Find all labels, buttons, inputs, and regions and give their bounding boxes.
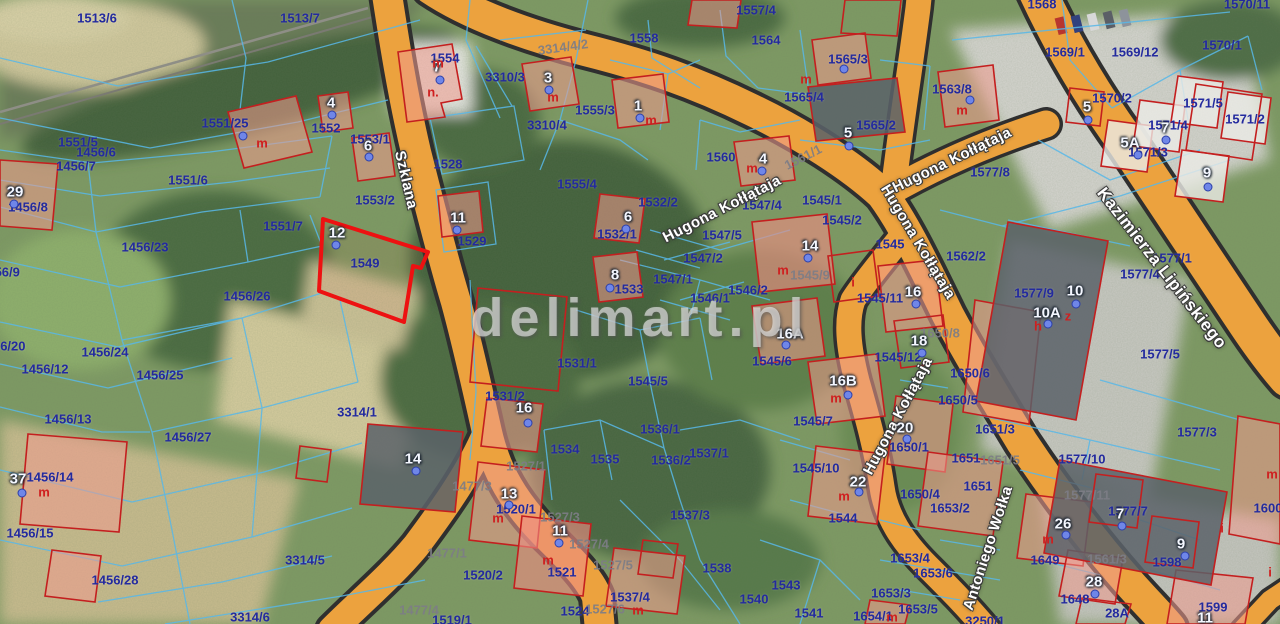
parcel-label: 1538 — [703, 562, 732, 575]
parcel-label: 1545/10 — [793, 462, 840, 475]
parcel-label: 1513/7 — [280, 12, 320, 25]
parcel-label: 1549 — [351, 257, 380, 270]
building-number: 6 — [364, 139, 372, 154]
building-type-marker: m — [777, 264, 789, 277]
parcel-label: 1532/1 — [597, 228, 637, 241]
parcel-label: 1456/9 — [0, 266, 20, 279]
building-number: 5A — [1120, 136, 1139, 151]
building-type-marker: z — [1065, 310, 1072, 323]
parcel-label: 1541 — [795, 607, 824, 620]
building-number: 11 — [450, 211, 466, 226]
parcel-label: 1565/2 — [856, 119, 896, 132]
parcel-label: 1563/8 — [932, 83, 972, 96]
building-type-marker: i — [851, 276, 855, 289]
parcel-label: 3310/4 — [527, 119, 567, 132]
parcel-label: 1456/28 — [92, 574, 139, 587]
parcel-label: 1571/5 — [1183, 97, 1223, 110]
parcel-label: 1568 — [1028, 0, 1057, 11]
parcel-label: 1532/2 — [638, 196, 678, 209]
building-number: 4 — [327, 96, 335, 111]
building-dot — [524, 419, 533, 428]
building-dot — [1062, 531, 1071, 540]
parcel-label: 1545/11 — [857, 292, 903, 305]
parcel-label: 1545 — [876, 238, 905, 251]
building-dot — [555, 539, 564, 548]
building-type-marker: m — [645, 114, 657, 127]
building-type-marker: n. — [427, 86, 439, 99]
parcel-label: 1545/5 — [628, 375, 668, 388]
building-dot — [1084, 116, 1093, 125]
road-parcel-label: 1527/6 — [585, 603, 625, 616]
watermark: delimart.pl — [470, 287, 809, 349]
building-dot — [844, 391, 853, 400]
parcel-label: 1547/5 — [702, 229, 742, 242]
road-parcel-label: 1477/4 — [399, 604, 439, 617]
building-dot — [840, 65, 849, 74]
parcel-label: 1650/4 — [900, 488, 940, 501]
parcel-label: 1650/6 — [950, 367, 990, 380]
road-parcel-label: 1527/4 — [569, 538, 609, 551]
parcel-label: 1570/11 — [1224, 0, 1270, 11]
parcel-label: 1456/23 — [122, 241, 169, 254]
building-dot — [845, 142, 854, 151]
map-canvas[interactable]: 1513/61513/71551/251551/51456/61456/7155… — [0, 0, 1280, 624]
building-dot — [912, 300, 921, 309]
parcel-label: 1569/1 — [1045, 46, 1085, 59]
building-dot — [505, 501, 514, 510]
building-number: 5 — [1083, 100, 1091, 115]
building-number: 37 — [10, 472, 27, 487]
parcel-label: 1536/2 — [651, 454, 691, 467]
building-dot — [758, 167, 767, 176]
building-type-marker: m — [542, 554, 554, 567]
parcel-label: 1540 — [740, 593, 769, 606]
building-type-marker: m — [1042, 533, 1054, 546]
building-number: 6 — [624, 210, 632, 225]
road-parcel-label: 1477/1 — [427, 547, 467, 560]
building-type-marker: m — [800, 73, 812, 86]
parcel-label: 3314/1 — [337, 406, 377, 419]
building-number: 14 — [405, 452, 422, 467]
parcel-label: 1552 — [312, 122, 341, 135]
road-parcel-label: 1651/5 — [980, 454, 1020, 467]
parcel-label: 1456/24 — [82, 346, 129, 359]
parcel-label: 1545/6 — [752, 355, 792, 368]
parcel-label: 1577/5 — [1140, 348, 1180, 361]
building-type-marker: m — [956, 104, 968, 117]
parcel-label: 3314/6 — [230, 611, 270, 624]
building-dot — [239, 132, 248, 141]
parcel-label: 1456/7 — [56, 160, 96, 173]
parcel-label: 1513/6 — [77, 12, 117, 25]
building-number: 28 — [1086, 575, 1103, 590]
building-number: 1 — [634, 99, 642, 114]
building-number: 9 — [1203, 166, 1211, 181]
building-dot — [412, 467, 421, 476]
parcel-label: 1531/1 — [557, 357, 597, 370]
road-parcel-label: 1545/9 — [790, 269, 830, 282]
building-number: 11 — [1197, 611, 1213, 624]
parcel-label: 3250/1 — [965, 615, 1005, 624]
parcel-label: 1577/9 — [1014, 287, 1054, 300]
parcel-label: 1565/3 — [828, 53, 868, 66]
parcel-label: 1456/13 — [45, 413, 92, 426]
building-number: 20 — [897, 421, 914, 436]
parcel-label: 1649 — [1031, 554, 1060, 567]
building-dot — [1118, 522, 1127, 531]
parcel-label: 1600 — [1254, 502, 1280, 515]
building-type-marker: i — [1220, 522, 1224, 535]
parcel-label: 1456/15 — [7, 527, 54, 540]
road-parcel-label: 1577/11 — [1064, 489, 1110, 502]
building-dot — [1091, 590, 1100, 599]
parcel-label: 1520/2 — [463, 569, 503, 582]
building-dot — [903, 435, 912, 444]
parcel-label: 1558 — [630, 32, 659, 45]
building-dot — [10, 200, 19, 209]
parcel-label: 1545/12 — [875, 351, 922, 364]
building-number: 8 — [611, 268, 619, 283]
parcel-label: 1651/3 — [975, 423, 1015, 436]
building-type-marker: m — [886, 611, 898, 624]
parcel-label: 1456/20 — [0, 340, 26, 353]
parcel-label: 1555/3 — [575, 104, 615, 117]
parcel-label: 1545/2 — [822, 214, 862, 227]
parcel-label: 1535 — [591, 453, 620, 466]
building-number: 13 — [501, 487, 518, 502]
parcel-label: 1569/12 — [1112, 46, 1159, 59]
building-number: 14 — [802, 239, 819, 254]
parcel-label: 1543 — [772, 579, 801, 592]
building-type-marker: m — [432, 57, 444, 70]
building-number: 11 — [552, 524, 568, 539]
parcel-label: 1557/4 — [736, 4, 776, 17]
building-number: 16 — [905, 285, 922, 300]
parcel-label: 1653/3 — [871, 587, 911, 600]
building-type-marker: m — [492, 512, 504, 525]
parcel-label: 1547/1 — [653, 273, 693, 286]
building-type-marker: h — [1034, 320, 1042, 333]
building-type-marker: m — [256, 137, 268, 150]
parcel-label: 1534 — [551, 443, 580, 456]
parcel-label: 1545/7 — [793, 415, 833, 428]
building-dot — [636, 114, 645, 123]
building-dot — [365, 153, 374, 162]
parcel-label: 1565/4 — [784, 91, 824, 104]
parcel-label: 1570/2 — [1092, 92, 1132, 105]
building-number: 12 — [329, 226, 346, 241]
building-dot — [1134, 151, 1143, 160]
road-parcel-label: 1527/1 — [506, 460, 546, 473]
building-number: 18 — [911, 334, 928, 349]
building-number: 5 — [844, 126, 852, 141]
parcel-label: 1555/4 — [557, 178, 597, 191]
road-parcel-label: 3314/4/2 — [537, 37, 589, 57]
building-dot — [436, 76, 445, 85]
parcel-label: 1544 — [829, 512, 858, 525]
building-dot — [804, 254, 813, 263]
building-dot — [1072, 300, 1081, 309]
parcel-label: 1577/10 — [1059, 453, 1106, 466]
road-parcel-label: 1561/1 — [782, 142, 823, 172]
building-type-marker: m — [1266, 468, 1278, 481]
building-number: 16 — [516, 401, 533, 416]
parcel-label: 1456/6 — [76, 146, 116, 159]
parcel-label: 1577/7 — [1108, 505, 1148, 518]
street-label: Kazimierza Lipińskiego — [1094, 184, 1230, 351]
parcel-label: 1529 — [458, 235, 487, 248]
building-number: 16B — [829, 374, 857, 389]
road-parcel-label: 1527/5 — [593, 559, 633, 572]
parcel-label: 1562/2 — [946, 250, 986, 263]
building-dot — [18, 489, 27, 498]
building-type-marker: m — [547, 91, 559, 104]
parcel-label: 1551/6 — [168, 174, 208, 187]
street-label: Hugona Kołłątaja — [890, 125, 1014, 196]
parcel-label: 1653/2 — [930, 502, 970, 515]
parcel-label: 1456/14 — [27, 471, 74, 484]
building-number: 7 — [1116, 507, 1124, 522]
building-dot — [855, 488, 864, 497]
building-number: 4 — [759, 152, 767, 167]
building-dot — [328, 111, 337, 120]
street-label: Szklana — [392, 149, 420, 210]
building-type-marker: m — [746, 162, 758, 175]
parcel-label: 1456/26 — [224, 290, 271, 303]
road-parcel-label: 1477/3 — [452, 480, 492, 493]
parcel-label: 28A — [1105, 607, 1129, 620]
parcel-label: 1456/27 — [165, 431, 212, 444]
parcel-label: 1598 — [1153, 556, 1182, 569]
parcel-label: 1653/5 — [898, 603, 938, 616]
parcel-label: 1528 — [434, 158, 463, 171]
building-type-marker: m — [830, 392, 842, 405]
parcel-label: 1577/8 — [970, 166, 1010, 179]
building-number: 26 — [1055, 517, 1072, 532]
building-dot — [1204, 183, 1213, 192]
parcel-label: 1547/2 — [683, 252, 723, 265]
building-type-marker: m — [632, 604, 644, 617]
building-dot — [1044, 320, 1053, 329]
building-number: 10 — [1067, 284, 1084, 299]
building-type-marker: m — [38, 486, 50, 499]
street-label: Hugona Kołłątaja — [861, 355, 936, 477]
building-number: 29 — [7, 185, 24, 200]
parcel-label: 1536/1 — [640, 423, 680, 436]
parcel-label: 1551/7 — [263, 220, 303, 233]
building-number: 3 — [544, 71, 552, 86]
parcel-label: 1648 — [1061, 593, 1090, 606]
building-number: 9 — [1177, 537, 1185, 552]
building-dot — [622, 225, 631, 234]
parcel-label: 1571/2 — [1225, 113, 1265, 126]
building-dot — [453, 226, 462, 235]
parcel-label: 1653/4 — [890, 552, 930, 565]
parcel-label: 3310/3 — [485, 71, 525, 84]
parcel-label: 1651 — [964, 480, 993, 493]
parcel-label: 1650/5 — [938, 394, 978, 407]
parcel-label: 1651 — [952, 452, 981, 465]
parcel-label: 1537/3 — [670, 509, 710, 522]
building-dot — [918, 349, 927, 358]
building-type-marker: i — [1268, 566, 1272, 579]
parcel-label: 1456/25 — [137, 369, 184, 382]
parcel-label: 1537/1 — [689, 447, 729, 460]
parcel-label: 1564 — [752, 34, 781, 47]
building-number: 7 — [1161, 121, 1169, 136]
parcel-label: 3314/5 — [285, 554, 325, 567]
building-dot — [1181, 552, 1190, 561]
building-dot — [1162, 136, 1171, 145]
parcel-label: 1653/6 — [913, 567, 953, 580]
road-parcel-label: 1561/3 — [1087, 553, 1127, 566]
parcel-label: 1553/2 — [355, 194, 395, 207]
parcel-label: 1560 — [707, 151, 736, 164]
parcel-label: 1545/1 — [802, 194, 842, 207]
parcel-label: 1570/1 — [1202, 39, 1242, 52]
parcel-label: 1551/25 — [202, 117, 249, 130]
building-type-marker: m — [838, 490, 850, 503]
building-dot — [332, 241, 341, 250]
parcel-label: 1577/3 — [1177, 426, 1217, 439]
parcel-label: 1456/12 — [22, 363, 69, 376]
